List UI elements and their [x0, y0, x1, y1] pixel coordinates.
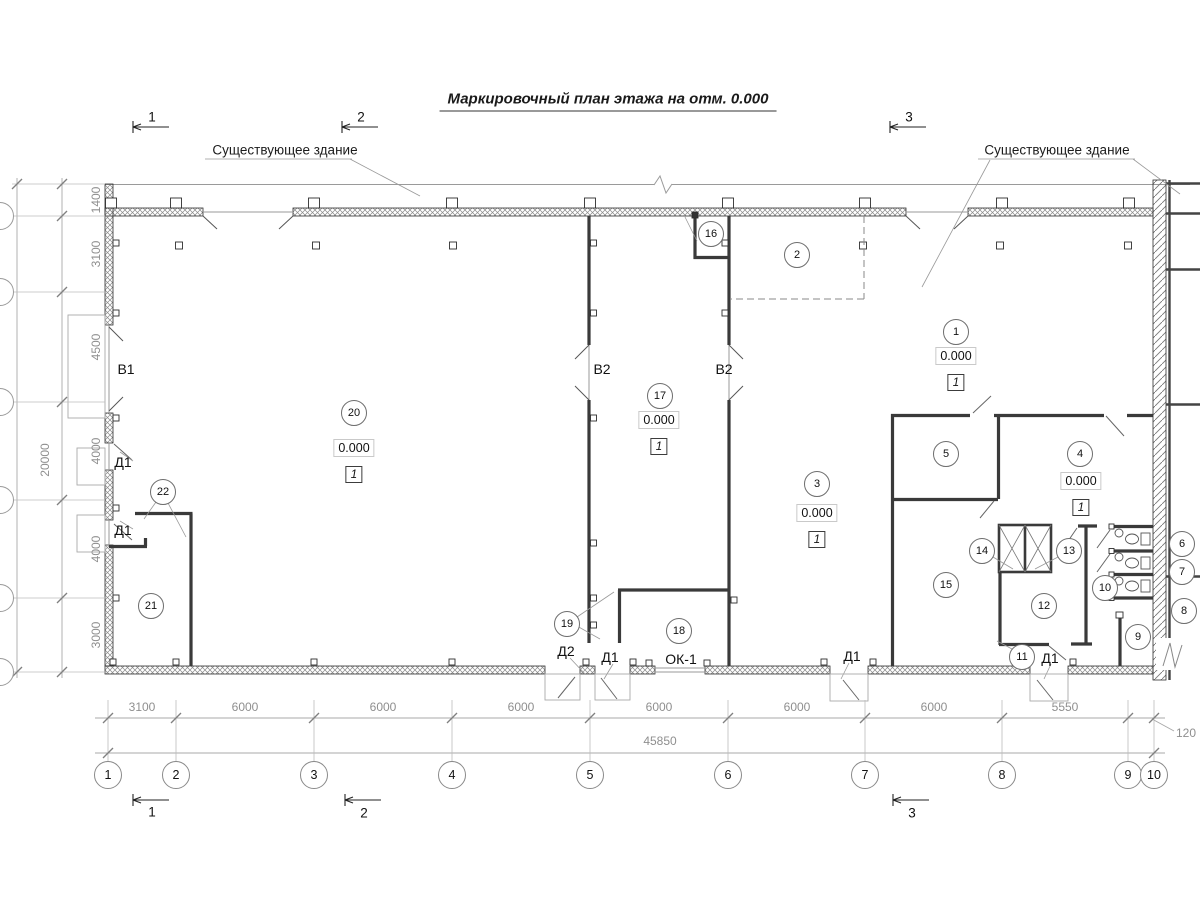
grid-axis-number: 5: [587, 768, 594, 782]
grid-axis-number: 2: [173, 768, 180, 782]
grid-axis-number: 10: [1147, 768, 1161, 782]
room-number-circle: 16: [698, 221, 724, 247]
grid-axis-bubble: 2: [162, 761, 190, 789]
room-number: 4: [1077, 448, 1083, 460]
chamfer-marks: [109, 216, 968, 411]
room-number: 8: [1181, 605, 1187, 617]
room-number-circle: 6: [1169, 531, 1195, 557]
grid-axis-number: 1: [105, 768, 112, 782]
opening-label: Д1: [114, 522, 131, 538]
grid-axis-bubble: 5: [576, 761, 604, 789]
existing-building-line: [105, 176, 1190, 193]
opening-label: В2: [715, 361, 732, 377]
room-number: 3: [814, 478, 820, 490]
section-mark-number-top: 2: [357, 110, 365, 125]
dimension-segment-bottom: 6000: [646, 700, 673, 714]
room-number-circle: 22: [150, 479, 176, 505]
room-number: 1: [953, 326, 959, 338]
grid-axis-bubble: 4: [438, 761, 466, 789]
grid-axis-bubble: 3: [300, 761, 328, 789]
grid-axis-number: 7: [862, 768, 869, 782]
dimension-segment-left: 4000: [89, 536, 103, 563]
elevation-marker: 0.000 1: [796, 504, 837, 548]
room-number-circle: 3: [804, 471, 830, 497]
opening-label: Д1: [1041, 650, 1058, 666]
floor-plan-canvas: Маркировочный план этажа на отм. 0.000 С…: [0, 0, 1200, 900]
room-number: 11: [1016, 651, 1027, 663]
room-number-circle: 17: [647, 383, 673, 409]
elevation-marker: 0.000 1: [638, 411, 679, 455]
opening-lines: [109, 212, 968, 672]
grid-axis-number: 3: [311, 768, 318, 782]
room-number-circle: 1: [943, 319, 969, 345]
elevation-value: 0.000: [796, 504, 837, 522]
room-number: 19: [561, 618, 573, 630]
hatched-walls: [105, 184, 1153, 674]
room-number-circle: 14: [969, 538, 995, 564]
grid-axis-bubble: 9: [1114, 761, 1142, 789]
opening-label: В1: [117, 361, 134, 377]
wc-fixtures: [1115, 529, 1150, 592]
dimension-segment-left: 4500: [89, 334, 103, 361]
dimension-segment-left: 3000: [89, 622, 103, 649]
opening-label: Д1: [601, 649, 618, 665]
room-number: 5: [943, 448, 949, 460]
grid-axis-bubble: 7: [851, 761, 879, 789]
room-number: 16: [705, 228, 717, 240]
section-mark-number-top: 1: [148, 110, 156, 125]
grid-axis-bubble: 8: [988, 761, 1016, 789]
section-mark-number-bottom: 1: [148, 805, 156, 820]
room-number: 20: [348, 407, 360, 419]
grid-axis-bubble: 6: [714, 761, 742, 789]
dimension-total-left: 20000: [38, 443, 52, 476]
room-number: 21: [145, 600, 157, 612]
room-number: 18: [673, 625, 685, 637]
room-number: 9: [1135, 631, 1141, 643]
partition-walls: [109, 216, 1153, 666]
opening-label: В2: [593, 361, 610, 377]
grid-axis-number: 8: [999, 768, 1006, 782]
room-number-circle: 4: [1067, 441, 1093, 467]
dimension-segment-bottom: 6000: [921, 700, 948, 714]
room-number: 15: [940, 579, 952, 591]
room-number-circle: 11: [1009, 644, 1035, 670]
room-number: 10: [1099, 582, 1111, 594]
opening-label: Д1: [843, 648, 860, 664]
room-number: 12: [1038, 600, 1050, 612]
elevation-value: 0.000: [935, 347, 976, 365]
dimension-segment-bottom: 6000: [784, 700, 811, 714]
drawing-title: Маркировочный план этажа на отм. 0.000: [440, 91, 777, 112]
dimension-segment-bottom: 5550: [1052, 700, 1079, 714]
dimension-segment-bottom: 6000: [370, 700, 397, 714]
dimension-segment-bottom: 6000: [508, 700, 535, 714]
room-number: 17: [654, 390, 666, 402]
room-number-circle: 2: [784, 242, 810, 268]
room-number: 6: [1179, 538, 1185, 550]
dimension-segment-left: 3100: [89, 241, 103, 268]
opening-label: Д1: [114, 454, 131, 470]
elevation-marker: 0.000 1: [1060, 472, 1101, 516]
section-mark-number-bottom: 2: [360, 806, 368, 821]
room-number-circle: 8: [1171, 598, 1197, 624]
room-number-circle: 5: [933, 441, 959, 467]
dimension-segment-left: 1400: [89, 187, 103, 214]
floor-type-box: 1: [651, 438, 668, 455]
room-number: 7: [1179, 566, 1185, 578]
room-number: 13: [1063, 545, 1075, 557]
grid-axis-number: 6: [725, 768, 732, 782]
floor-type-box: 1: [809, 531, 826, 548]
axis-extension-lines: [12, 184, 1154, 761]
opening-label: ОК-1: [665, 651, 697, 667]
grid-axis-number: 9: [1125, 768, 1132, 782]
existing-building-label-right: Существующее здание: [984, 143, 1129, 158]
floor-type-box: 1: [948, 374, 965, 391]
break-symbol: [1156, 638, 1186, 670]
room-number: 2: [794, 249, 800, 261]
dimension-segment-left: 4000: [89, 438, 103, 465]
room-number: 22: [157, 486, 169, 498]
elevation-value: 0.000: [638, 411, 679, 429]
room-number-circle: 20: [341, 400, 367, 426]
dimension-extra-120: 120: [1176, 726, 1196, 740]
dimension-total-bottom: 45850: [643, 734, 676, 748]
opening-label: Д2: [557, 643, 574, 659]
room-number-circle: 7: [1169, 559, 1195, 585]
elevation-marker: 0.000 1: [935, 347, 976, 391]
room-number-circle: 12: [1031, 593, 1057, 619]
dimension-segment-bottom: 6000: [232, 700, 259, 714]
existing-wall: [1153, 180, 1166, 680]
section-mark-number-top: 3: [905, 110, 913, 125]
elevation-marker: 0.000 1: [333, 439, 374, 483]
floor-type-box: 1: [346, 466, 363, 483]
elevation-value: 0.000: [333, 439, 374, 457]
dimension-segment-bottom: 3100: [129, 700, 156, 714]
grid-axis-bubble: 1: [94, 761, 122, 789]
room-number-circle: 13: [1056, 538, 1082, 564]
grid-axis-number: 4: [449, 768, 456, 782]
room-number-circle: 15: [933, 572, 959, 598]
elevation-value: 0.000: [1060, 472, 1101, 490]
floor-type-box: 1: [1073, 499, 1090, 516]
section-mark-number-bottom: 3: [908, 806, 916, 821]
room-number-circle: 19: [554, 611, 580, 637]
room-number-circle: 18: [666, 618, 692, 644]
room-number-circle: 10: [1092, 575, 1118, 601]
room-number-circle: 9: [1125, 624, 1151, 650]
existing-building-label-left: Существующее здание: [212, 143, 357, 158]
grid-axis-bubble: 10: [1140, 761, 1168, 789]
room-number: 14: [976, 545, 988, 557]
room-number-circle: 21: [138, 593, 164, 619]
